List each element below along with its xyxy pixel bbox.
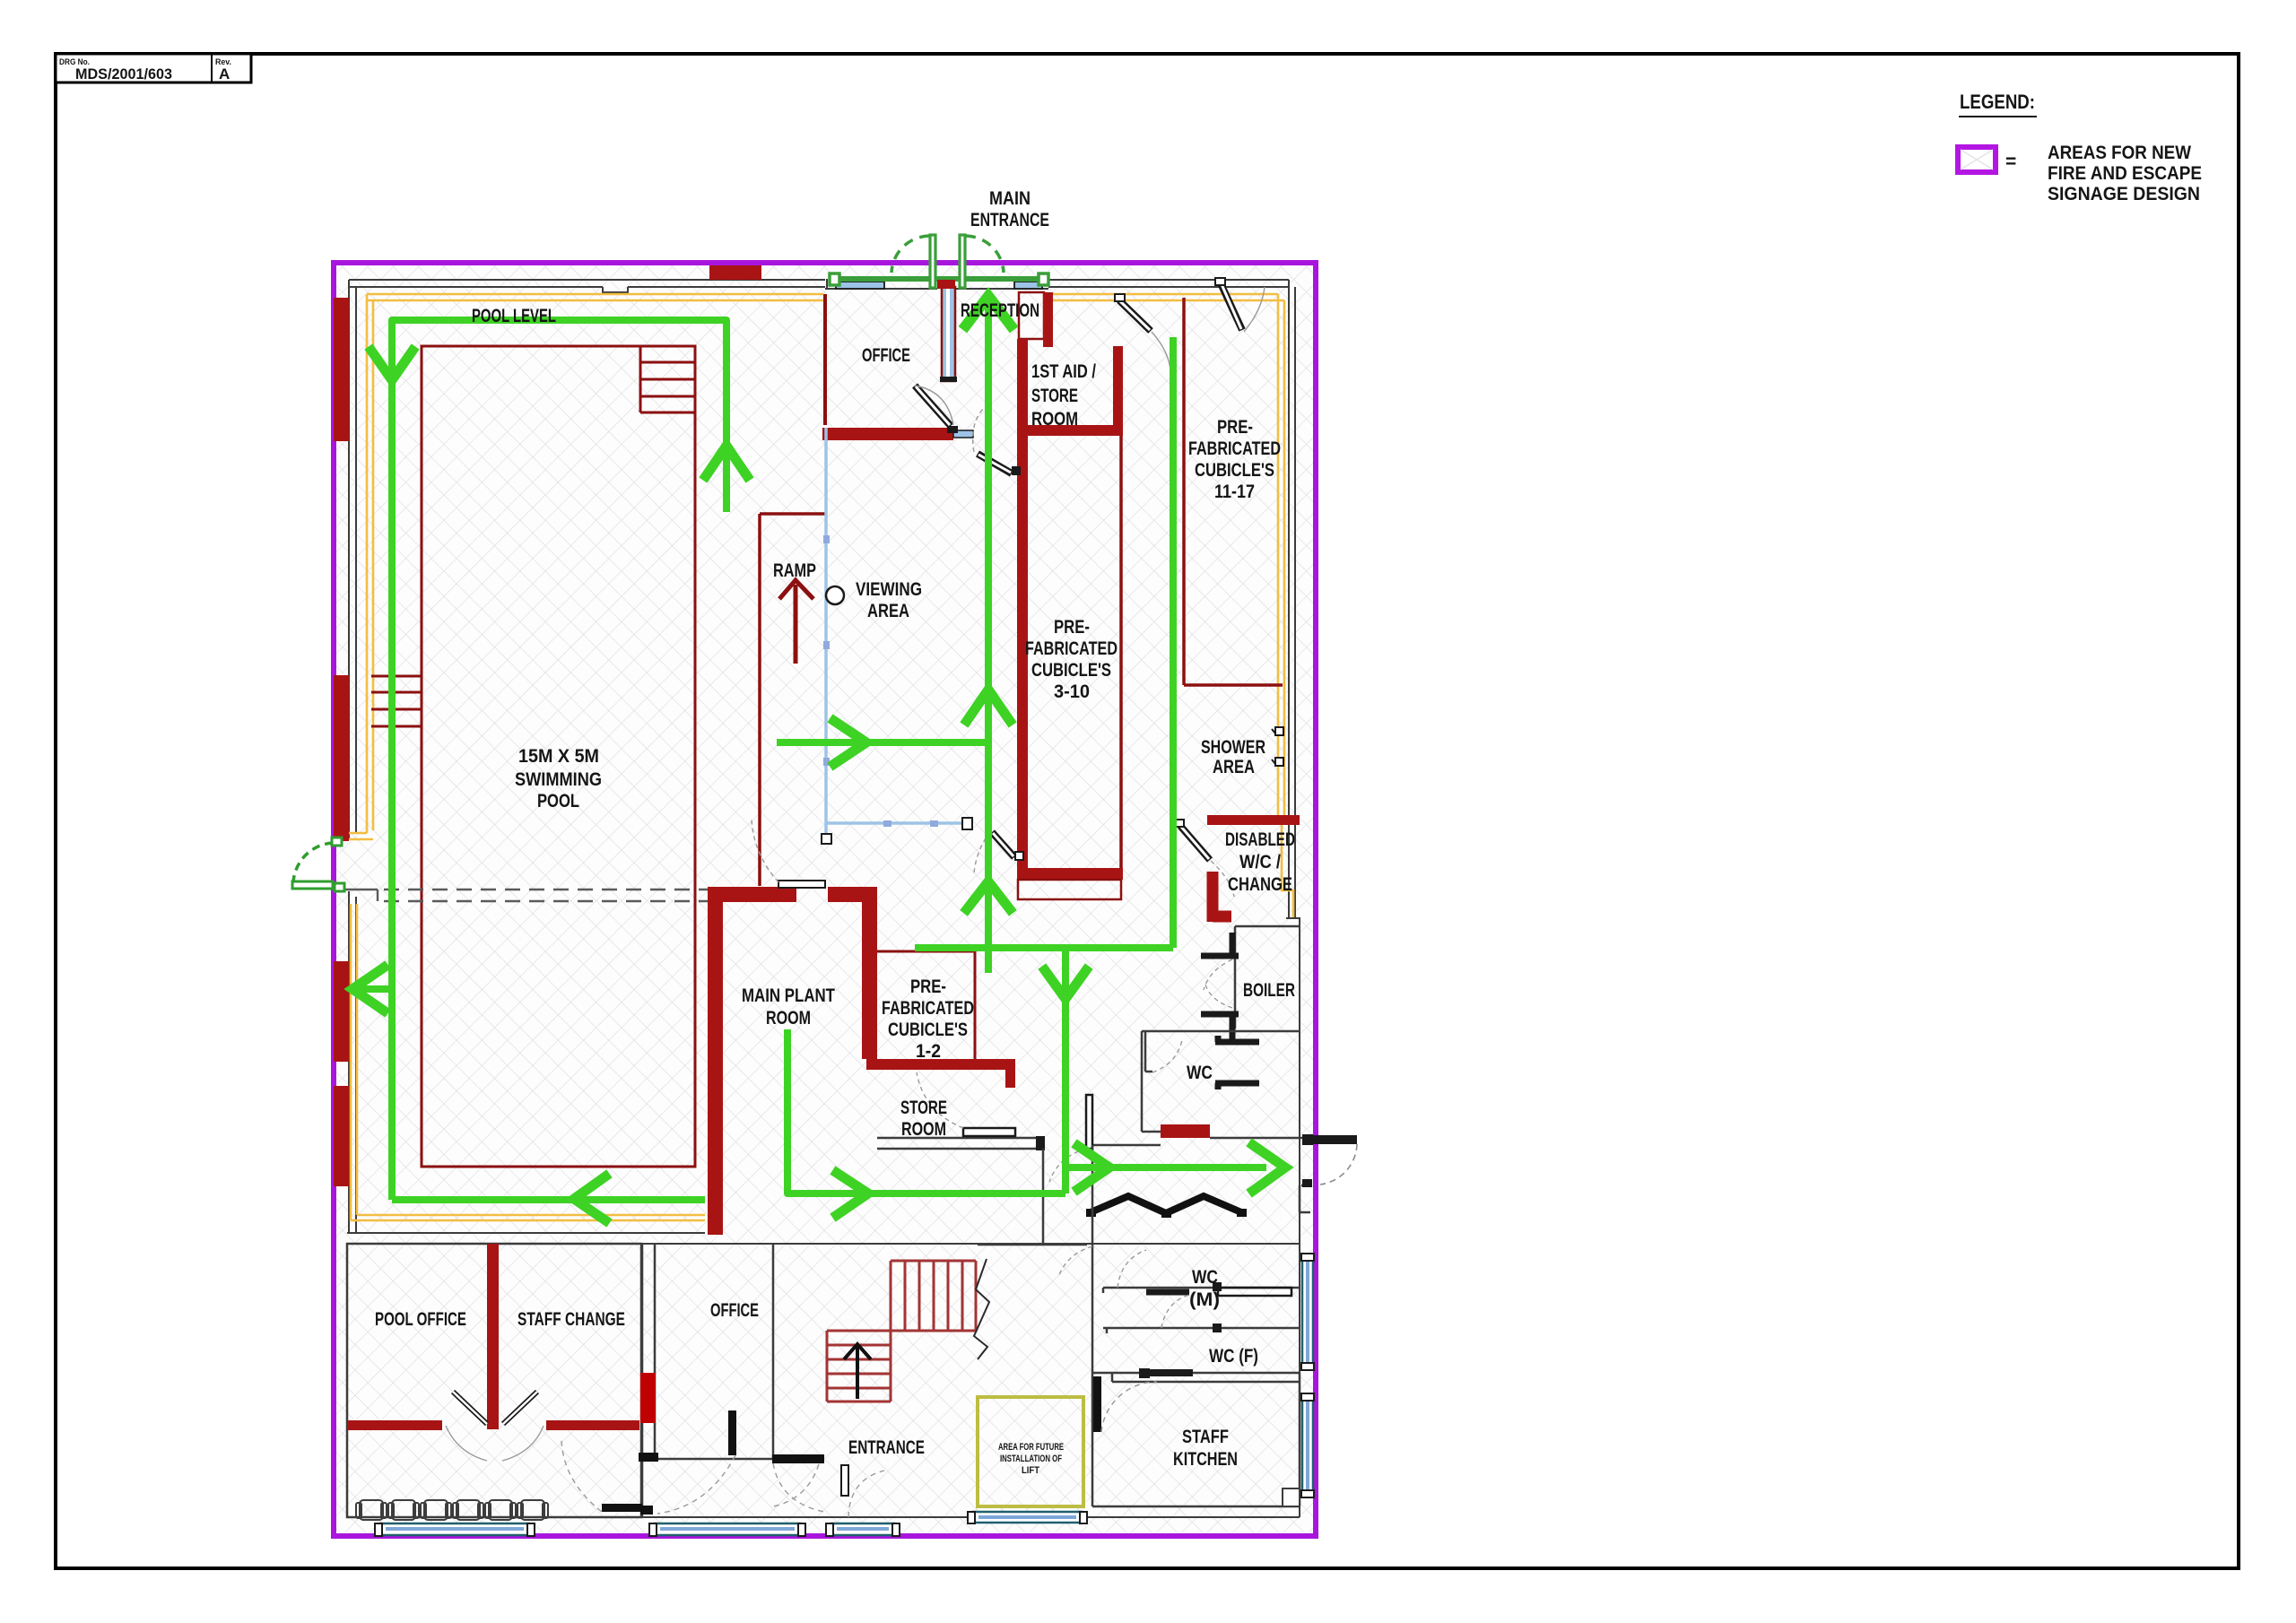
svg-text:MAIN: MAIN: [989, 188, 1031, 209]
svg-text:ROOM: ROOM: [766, 1008, 811, 1028]
svg-text:FIRE AND ESCAPE: FIRE AND ESCAPE: [2048, 163, 2202, 184]
svg-text:=: =: [2005, 152, 2016, 172]
svg-text:15M X 5M: 15M X 5M: [518, 746, 599, 767]
svg-text:MDS/2001/603: MDS/2001/603: [75, 65, 172, 82]
svg-text:OFFICE: OFFICE: [710, 1300, 759, 1321]
svg-text:CUBICLE'S: CUBICLE'S: [1031, 660, 1111, 681]
svg-text:MAIN PLANT: MAIN PLANT: [742, 985, 835, 1006]
svg-text:AREA FOR FUTURE: AREA FOR FUTURE: [998, 1442, 1064, 1453]
svg-text:1-2: 1-2: [916, 1041, 941, 1062]
svg-text:ROOM: ROOM: [1031, 409, 1078, 430]
svg-text:FABRICATED: FABRICATED: [882, 998, 974, 1019]
svg-text:DISABLED: DISABLED: [1225, 829, 1295, 850]
svg-text:AREA: AREA: [1213, 757, 1255, 777]
svg-text:AREA: AREA: [867, 601, 909, 621]
svg-text:VIEWING: VIEWING: [856, 579, 922, 600]
svg-text:PRE-: PRE-: [1217, 417, 1253, 438]
svg-text:PRE-: PRE-: [1054, 617, 1090, 638]
svg-text:A: A: [219, 65, 230, 82]
svg-text:RAMP: RAMP: [773, 560, 816, 581]
svg-text:BOILER: BOILER: [1243, 980, 1295, 1001]
svg-text:STAFF: STAFF: [1182, 1427, 1229, 1447]
svg-text:ROOM: ROOM: [901, 1119, 946, 1140]
svg-text:STORE: STORE: [900, 1098, 947, 1118]
svg-text:SIGNAGE DESIGN: SIGNAGE DESIGN: [2048, 184, 2200, 204]
svg-text:STAFF CHANGE: STAFF CHANGE: [517, 1309, 625, 1330]
svg-text:CHANGE: CHANGE: [1228, 874, 1292, 895]
svg-text:OFFICE: OFFICE: [862, 345, 910, 366]
svg-text:W/C /: W/C /: [1239, 852, 1281, 872]
svg-text:AREAS FOR NEW: AREAS FOR NEW: [2048, 143, 2191, 163]
svg-text:CUBICLE'S: CUBICLE'S: [1195, 460, 1274, 481]
svg-text:ENTRANCE: ENTRANCE: [970, 210, 1049, 230]
svg-text:FABRICATED: FABRICATED: [1188, 438, 1281, 459]
svg-text:WC (F): WC (F): [1209, 1346, 1258, 1367]
svg-text:3-10: 3-10: [1054, 681, 1090, 702]
svg-text:WC: WC: [1192, 1267, 1218, 1288]
svg-text:RECEPTION: RECEPTION: [961, 300, 1039, 321]
svg-text:ENTRANCE: ENTRANCE: [848, 1437, 925, 1458]
svg-text:STORE: STORE: [1031, 386, 1078, 406]
svg-text:CUBICLE'S: CUBICLE'S: [888, 1020, 968, 1040]
svg-text:SWIMMING: SWIMMING: [515, 769, 602, 790]
svg-text:PRE-: PRE-: [910, 976, 946, 997]
svg-text:LEGEND:: LEGEND:: [1960, 91, 2035, 113]
svg-text:KITCHEN: KITCHEN: [1173, 1449, 1238, 1470]
svg-text:FABRICATED: FABRICATED: [1025, 638, 1118, 659]
svg-text:POOL OFFICE: POOL OFFICE: [375, 1309, 466, 1330]
svg-text:1ST AID /: 1ST AID /: [1031, 361, 1096, 382]
svg-text:11-17: 11-17: [1214, 482, 1255, 502]
svg-text:(M): (M): [1189, 1289, 1220, 1310]
svg-text:POOL LEVEL: POOL LEVEL: [472, 306, 556, 326]
svg-text:INSTALLATION OF: INSTALLATION OF: [1000, 1454, 1062, 1464]
svg-text:SHOWER: SHOWER: [1201, 737, 1265, 758]
svg-text:POOL: POOL: [537, 791, 579, 811]
svg-text:WC: WC: [1187, 1063, 1213, 1083]
svg-text:LIFT: LIFT: [1022, 1465, 1039, 1476]
